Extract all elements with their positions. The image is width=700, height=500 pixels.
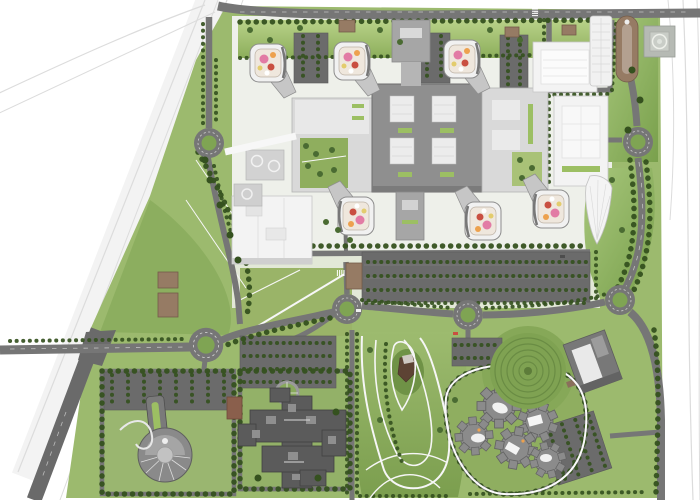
pad-building (234, 184, 262, 206)
central-complex-left-wing (292, 98, 372, 192)
car-red (453, 332, 458, 335)
car-white (356, 309, 361, 312)
brown-hut (346, 263, 362, 289)
green-skylight (440, 172, 454, 177)
roof-monitor (432, 96, 456, 122)
hall-roof (541, 50, 589, 84)
white-box-south-edge (232, 258, 312, 264)
gear-courtyard (471, 434, 485, 443)
sports-hall (554, 96, 608, 186)
green-skylight (398, 172, 412, 177)
right-wing-roof (492, 100, 520, 120)
main-slab-footprint (372, 84, 482, 192)
south-spine-roof (402, 200, 418, 210)
mound-center (524, 367, 532, 375)
tower-roof-dot (625, 20, 630, 25)
terraced-mound (490, 333, 566, 409)
roundabout-northwest (194, 128, 224, 158)
brown-hut (505, 27, 519, 37)
rotunda-core (157, 447, 173, 463)
roof-monitor (390, 96, 414, 122)
roof-unit (266, 228, 286, 240)
sports-hall-skylight (562, 166, 600, 172)
central-complex-main-slab (372, 84, 482, 192)
brown-hut (562, 25, 576, 35)
brown-hut (227, 397, 242, 419)
west-entry-road (0, 347, 191, 350)
brown-hut (158, 293, 178, 317)
north-spine-roof (400, 28, 422, 38)
gear-courtyard (540, 454, 552, 462)
masterplan-svg (0, 0, 700, 500)
south-spine-skylight (402, 220, 418, 224)
cross-arm-south (300, 470, 326, 486)
cross-arm-north (270, 388, 290, 402)
rotunda-dot (162, 438, 168, 444)
car-dark (560, 255, 565, 258)
northeast-parking (500, 35, 528, 89)
central-complex-south-spine (396, 192, 424, 240)
north-link (401, 62, 421, 86)
roundabout-east (605, 285, 635, 315)
roof-monitor (432, 138, 456, 164)
skylight (352, 104, 364, 108)
south-spine-block (396, 192, 424, 240)
right-wing-skylight (528, 104, 533, 144)
green-skylight (440, 128, 454, 133)
southwest-comb-parking (104, 372, 232, 410)
exhibition-hall (533, 42, 597, 92)
central-complex-right-wing (482, 88, 548, 192)
skylight (352, 116, 364, 120)
brown-hut (158, 272, 178, 288)
right-wing-roof (492, 130, 520, 150)
green-skylight (398, 128, 412, 133)
parking-structure (590, 16, 612, 86)
helipad-center-icon (657, 39, 662, 44)
site-plan-canvas (0, 0, 700, 500)
pad-building (246, 150, 284, 180)
gear-accent-dot (477, 428, 480, 431)
roof-unit (246, 206, 262, 216)
context-road-east (683, 0, 693, 500)
gear-accent-dot (521, 439, 524, 442)
roof-monitor (390, 138, 414, 164)
helipad (644, 26, 675, 57)
roundabout-center-east (453, 300, 483, 330)
roundabout-west-entry (189, 328, 224, 363)
brown-hut (339, 20, 355, 32)
tower-roof-band (622, 24, 632, 74)
